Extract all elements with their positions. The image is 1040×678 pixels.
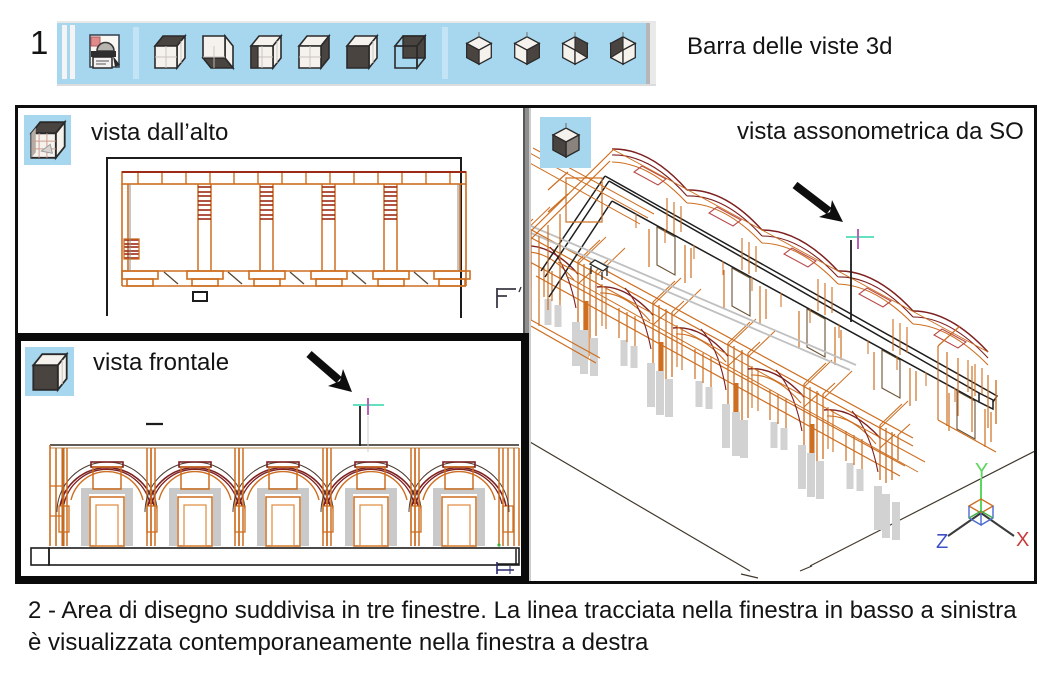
- svg-text:Y: Y: [975, 460, 988, 482]
- svg-text:X: X: [1016, 529, 1029, 551]
- svg-text:Z: Z: [936, 531, 948, 553]
